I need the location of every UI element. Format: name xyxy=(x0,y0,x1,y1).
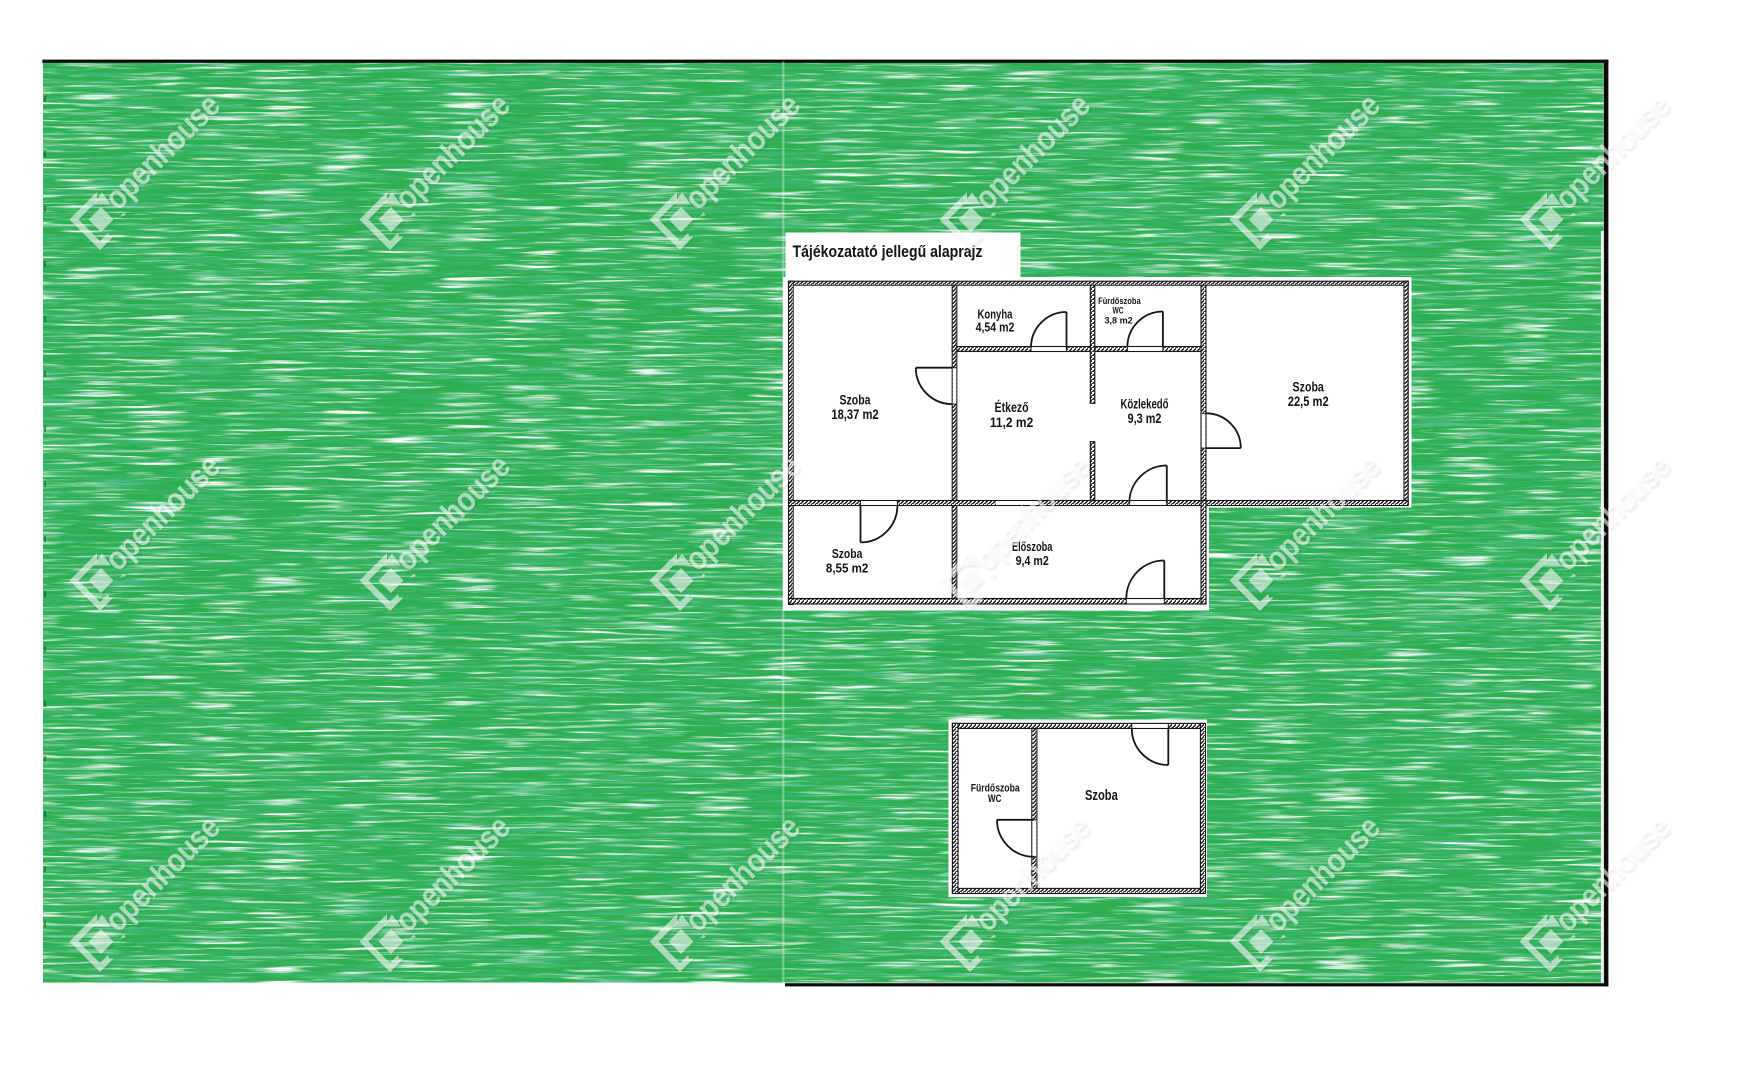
svg-text:Étkező: Étkező xyxy=(995,400,1029,415)
svg-text:4,54 m2: 4,54 m2 xyxy=(976,321,1015,335)
svg-text:22,5 m2: 22,5 m2 xyxy=(1288,394,1329,409)
svg-text:Szoba: Szoba xyxy=(832,546,863,561)
svg-text:8,55 m2: 8,55 m2 xyxy=(826,561,868,576)
svg-text:Szoba: Szoba xyxy=(1293,380,1325,395)
svg-text:Szoba: Szoba xyxy=(1085,787,1118,804)
svg-text:Közlekedő: Közlekedő xyxy=(1120,396,1168,411)
svg-text:3,8 m2: 3,8 m2 xyxy=(1104,315,1132,326)
svg-text:9,3 m2: 9,3 m2 xyxy=(1128,411,1162,426)
svg-text:WC: WC xyxy=(988,793,1001,805)
svg-text:Szoba: Szoba xyxy=(840,393,871,408)
svg-text:Tájékozatató jellegű alaprajz: Tájékozatató jellegű alaprajz xyxy=(793,242,983,261)
svg-text:Konyha: Konyha xyxy=(978,308,1014,322)
svg-text:9,4 m2: 9,4 m2 xyxy=(1016,553,1049,568)
svg-text:11,2 m2: 11,2 m2 xyxy=(990,415,1033,430)
svg-text:18,37 m2: 18,37 m2 xyxy=(831,407,878,422)
